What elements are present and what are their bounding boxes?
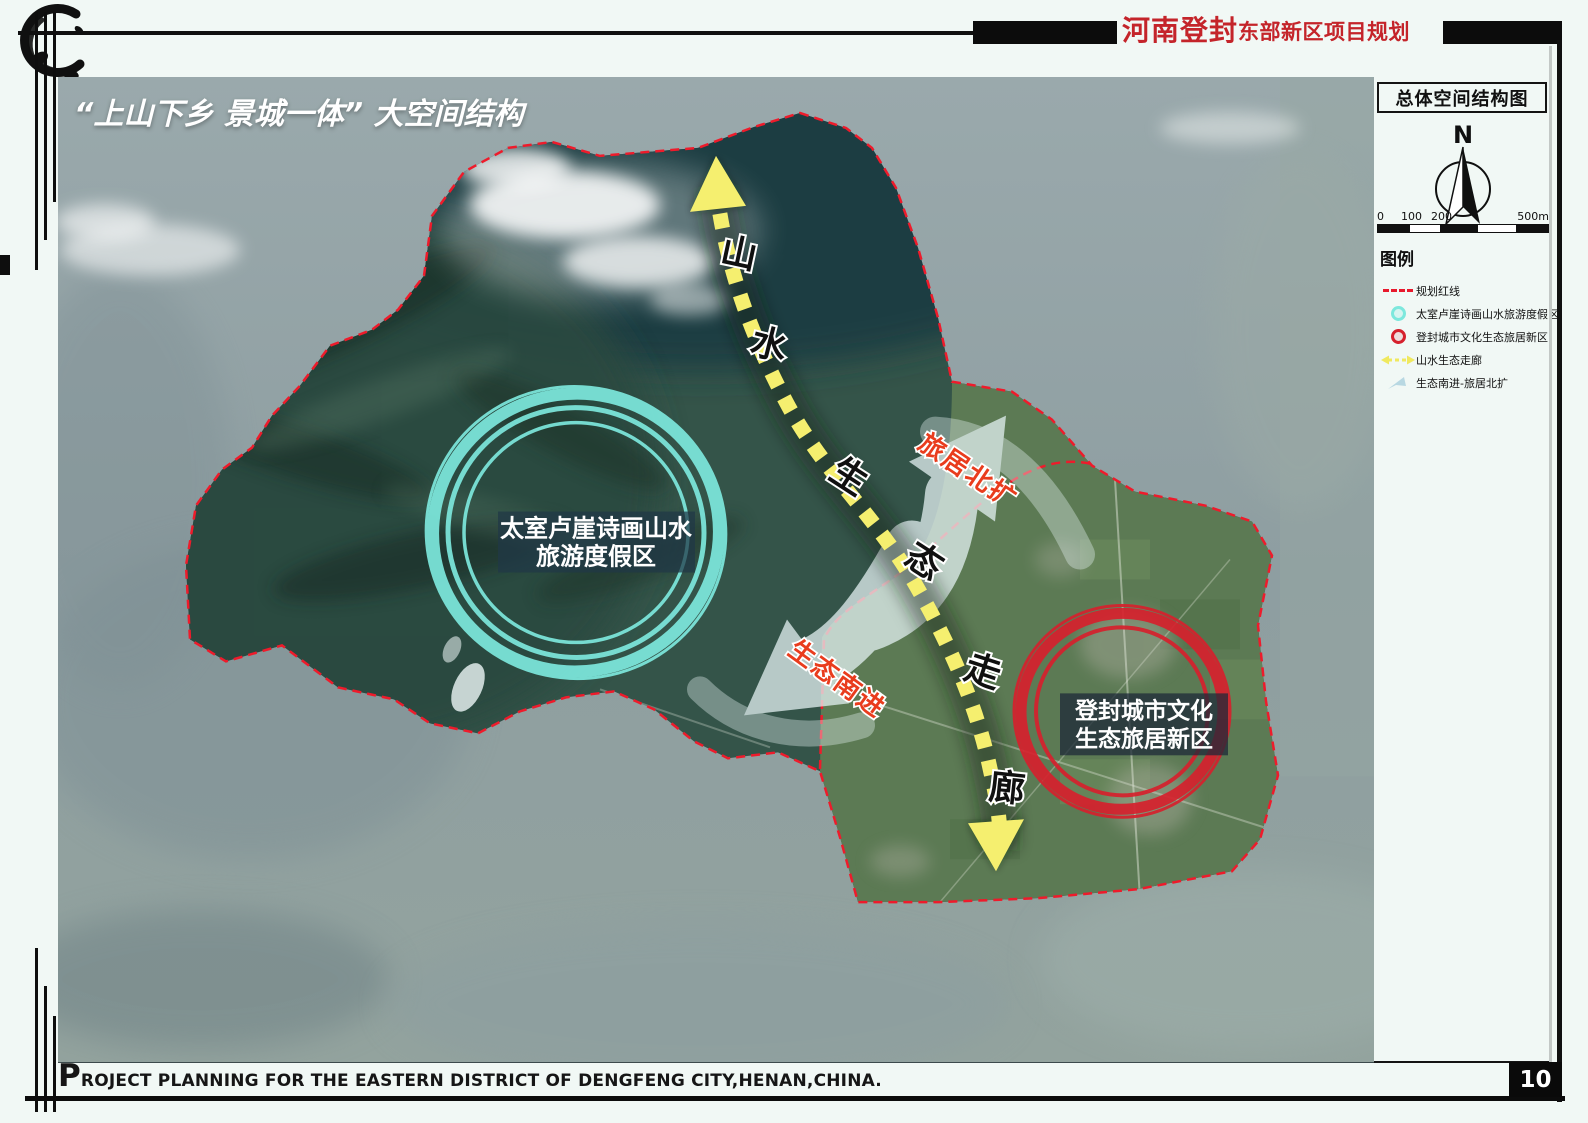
satellite-map-canvas: 太室卢崖诗画山水 旅游度假区 登封城市文化 生态旅居新区 山 水 生 态 走 廊…: [58, 77, 1374, 1063]
compass-north-label: N: [1453, 121, 1473, 149]
deco-vline: [35, 948, 38, 1112]
legend-item-corridor: 山水生态走廊: [1380, 348, 1552, 371]
cyan-circle-icon: [1391, 306, 1406, 321]
edge-tick-mark: [0, 255, 10, 275]
legend-item-resort: 太室卢崖诗画山水旅游度假区: [1380, 302, 1552, 325]
newtown-zone-label-line1: 登封城市文化: [1074, 697, 1213, 724]
document-title: 河南登封 东部新区项目规划: [1122, 12, 1442, 46]
legend-label: 生态南进-旅居北扩: [1416, 375, 1508, 391]
scale-tick: 500m: [1517, 210, 1549, 223]
document-title-main: 河南登封: [1122, 16, 1238, 46]
red-dashed-line-icon: [1383, 289, 1413, 292]
resort-zone-label-line2: 旅游度假区: [536, 543, 656, 571]
legend-label: 山水生态走廊: [1416, 352, 1482, 368]
resort-zone-label: 太室卢崖诗画山水 旅游度假区: [498, 512, 695, 573]
legend-label: 登封城市文化生态旅居新区: [1416, 329, 1548, 345]
frame-vline-gray: [1549, 46, 1552, 1096]
header-bar-left: [973, 21, 1117, 44]
scale-tick: 200: [1431, 210, 1452, 223]
yellow-dashed-arrow-icon: [1381, 354, 1415, 366]
legend-item-boundary: 规划红线: [1380, 279, 1552, 302]
document-title-sub: 东部新区项目规划: [1238, 19, 1410, 46]
legend-title: 图例: [1380, 245, 1552, 270]
scale-tick: 100: [1401, 210, 1422, 223]
newtown-zone-label-line2: 生态旅居新区: [1075, 725, 1213, 752]
plan-document-page: 河南登封 东部新区项目规划: [0, 0, 1588, 1123]
map-title: “上山下乡 景城一体” 大空间结构: [74, 89, 524, 133]
header-rule: [18, 31, 975, 35]
scale-bar-segments: [1377, 224, 1549, 233]
blue-flow-arrow-icon: [1386, 376, 1410, 390]
deco-vline: [53, 12, 56, 202]
map-graphics: 太室卢崖诗画山水 旅游度假区 登封城市文化 生态旅居新区 山 水 生 态 走 廊…: [58, 77, 1374, 1062]
newtown-zone-label: 登封城市文化 生态旅居新区: [1060, 693, 1228, 755]
map-info-panel: 总体空间结构图 N 0 100 200 500m 图例 规划红: [1374, 77, 1552, 1063]
scale-bar: 0 100 200 500m: [1377, 210, 1549, 236]
scale-tick: 0: [1377, 210, 1384, 223]
red-circle-icon: [1391, 329, 1406, 344]
resort-zone-label-line1: 太室卢崖诗画山水: [500, 515, 693, 543]
legend-label: 太室卢崖诗画山水旅游度假区: [1416, 306, 1559, 322]
deco-vline: [35, 12, 38, 270]
header-bar-right: [1443, 21, 1562, 44]
footer-caption: PROJECT PLANNING FOR THE EASTERN DISTRIC…: [58, 1060, 882, 1097]
panel-title: 总体空间结构图: [1377, 82, 1547, 113]
ink-seal-logo: [12, 2, 100, 88]
corridor-char: 廊: [987, 767, 1027, 812]
deco-vline: [44, 986, 47, 1112]
legend-item-newtown: 登封城市文化生态旅居新区: [1380, 325, 1552, 348]
deco-vline: [44, 12, 47, 240]
legend-item-flow: 生态南进-旅居北扩: [1380, 371, 1552, 394]
legend: 图例 规划红线 太室卢崖诗画山水旅游度假区 登封城市文化生态旅居新区: [1380, 245, 1552, 394]
page-number-badge: 10: [1509, 1062, 1562, 1097]
frame-vline-black: [1557, 40, 1562, 1102]
legend-label: 规划红线: [1416, 283, 1460, 299]
